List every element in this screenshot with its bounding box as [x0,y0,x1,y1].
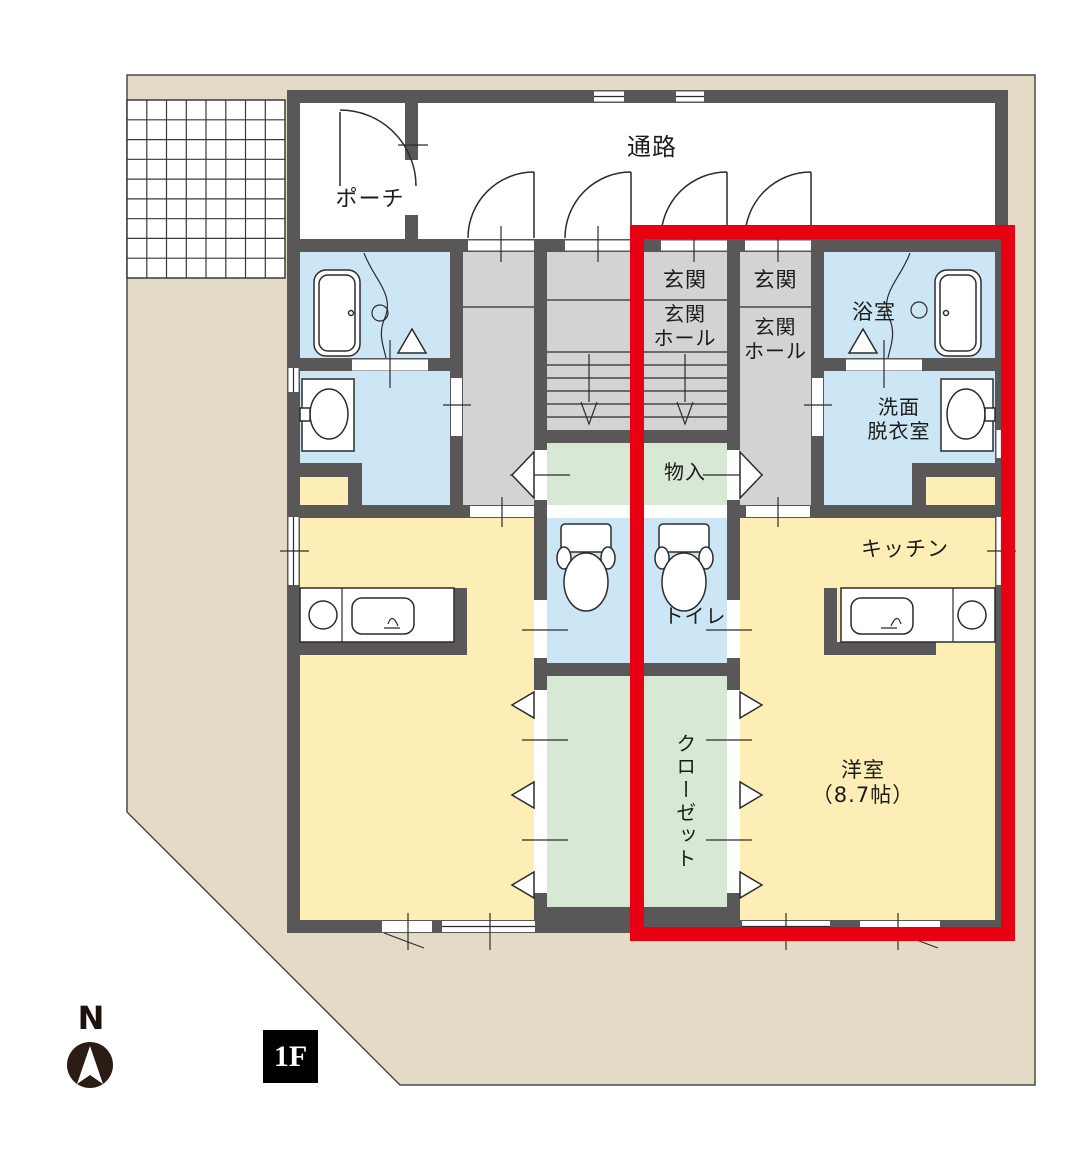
right-room-notch [926,477,995,505]
right-closet-floor [643,676,727,907]
left-sink [300,379,354,451]
north-label: N [70,1000,112,1036]
right-kitchen-counter [841,588,995,642]
floor-badge: 1F [263,1030,318,1083]
left-closet-floor [547,676,631,907]
right-stairs-floor [643,251,727,443]
left-stairs-floor [547,251,631,443]
floor-plan: 通路 ポーチ 玄関 玄関 玄関 ホール 玄関 ホール 浴室 洗面 脱衣室 物入 … [0,0,1078,1154]
left-kitchen-counter [300,588,454,642]
right-storage-floor [643,443,727,505]
left-room-floor [300,518,547,920]
left-bathtub [314,270,360,356]
tile-paving [127,100,285,278]
right-sink [941,379,995,451]
left-washroom-floor2 [362,463,450,505]
left-storage-floor [547,443,631,505]
left-room-notch [300,477,348,505]
right-bathtub [935,270,981,356]
north-compass-icon [67,1042,113,1088]
right-room-floor [740,518,995,920]
floor-plan-drawing [0,0,1078,1154]
right-washroom-floor2 [824,463,912,505]
